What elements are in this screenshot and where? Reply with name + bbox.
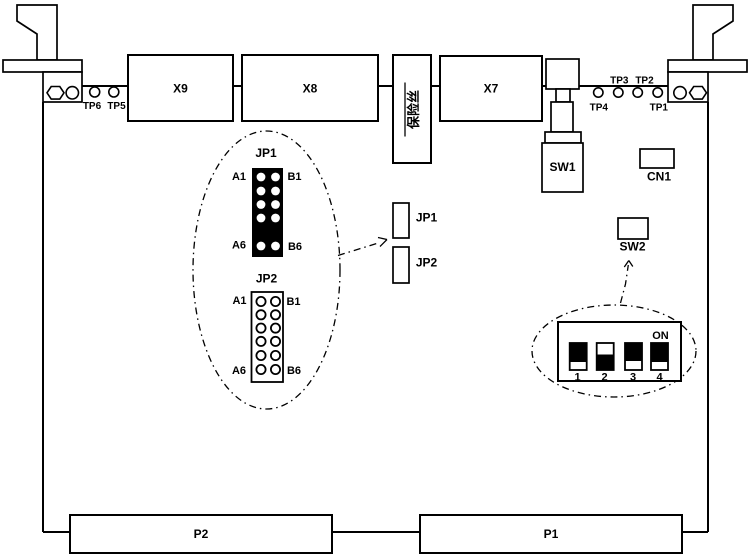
leader-arrow-jp <box>338 238 387 256</box>
left-ejector-handle <box>3 5 82 102</box>
pcb-layout-diagram: TP6 TP5 TP3 TP2 TP4 TP1 X9 X8 保险丝 X7 SW1 <box>0 0 755 560</box>
arrowhead-icon <box>378 238 387 247</box>
test-point-tp5 <box>109 87 119 97</box>
test-points-right: TP3 TP2 TP4 TP1 <box>590 76 669 114</box>
hex-screw-icon <box>690 87 707 100</box>
x8-label: X8 <box>303 82 318 96</box>
jp1-pin-b6: B6 <box>288 241 302 253</box>
cn1-connector: CN1 <box>640 149 674 184</box>
connector-x7: X7 <box>440 56 542 121</box>
jp1-box <box>393 203 409 238</box>
pin-hole <box>271 187 280 196</box>
sw1-shaft <box>551 102 573 132</box>
jp1-detail-title: JP1 <box>255 146 277 160</box>
tp3-label: TP3 <box>610 76 629 87</box>
pin-hole <box>257 214 266 223</box>
jp2-pin-a1: A1 <box>232 295 246 307</box>
hex-screw-icon <box>47 87 64 100</box>
jp1-pin-b1: B1 <box>287 171 301 183</box>
jp2-box <box>393 247 409 283</box>
dip-switch: ON 1 2 3 4 <box>558 322 681 384</box>
sw1-neck <box>556 89 570 102</box>
test-point-tp3 <box>614 88 623 97</box>
sw1-switch: SW1 <box>542 59 583 192</box>
cn1-box <box>640 149 674 168</box>
sw2-label: SW2 <box>619 240 645 254</box>
dip-switch-4-slider <box>651 343 668 362</box>
jumper-detail-balloon: JP1 A1 B1 A6 B6 JP2 <box>193 131 340 409</box>
left-handle-lever <box>17 5 57 60</box>
jp1-pin-a6: A6 <box>232 240 246 252</box>
jp2-pin-a6: A6 <box>232 365 246 377</box>
connector-p1: P1 <box>420 515 682 553</box>
pin-hole <box>271 365 280 374</box>
test-point-tp2 <box>633 88 642 97</box>
fuse-label: 保险丝 <box>406 90 421 130</box>
pin-hole <box>271 242 280 251</box>
leader-arrow-sw2 <box>621 261 633 304</box>
dip-pos-2-label: 2 <box>601 372 607 384</box>
sw2-box <box>618 218 648 239</box>
connector-x8: X8 <box>242 55 378 121</box>
pin-hole <box>271 297 280 306</box>
jp1-pin-a1: A1 <box>232 171 246 183</box>
right-handle-lever <box>693 5 733 60</box>
left-handle-plate <box>3 60 82 72</box>
pin-hole <box>271 214 280 223</box>
pin-hole <box>271 200 280 209</box>
pin-hole <box>256 324 265 333</box>
jp1-label: JP1 <box>416 211 438 225</box>
test-points-left: TP6 TP5 <box>83 87 126 112</box>
connector-p2: P2 <box>70 515 332 553</box>
sw1-label: SW1 <box>549 160 575 174</box>
jp1-jumper: JP1 <box>393 203 437 238</box>
connector-x9: X9 <box>128 55 233 121</box>
dip-on-label: ON <box>652 330 669 342</box>
test-point-tp6 <box>90 87 100 97</box>
pcb-diagram-canvas: TP6 TP5 TP3 TP2 TP4 TP1 X9 X8 保险丝 X7 SW1 <box>0 0 755 560</box>
tp6-label: TP6 <box>83 101 102 112</box>
board-outline <box>43 86 708 532</box>
leader-line <box>338 243 380 256</box>
jp2-pin-b1: B1 <box>286 296 300 308</box>
round-screw-icon <box>66 87 78 99</box>
sw1-collar <box>545 132 581 143</box>
tp4-label: TP4 <box>590 103 609 114</box>
test-point-tp4 <box>594 88 603 97</box>
dip-pos-3-label: 3 <box>630 372 636 384</box>
pin-hole <box>257 200 266 209</box>
p1-label: P1 <box>544 527 559 541</box>
right-handle-plate <box>668 60 747 72</box>
p2-label: P2 <box>194 527 209 541</box>
round-screw-icon <box>674 87 686 99</box>
sw1-top-block <box>546 59 579 89</box>
jp2-jumper: JP2 <box>393 247 437 283</box>
jp1-detail: JP1 A1 B1 A6 B6 <box>232 146 302 257</box>
pin-hole <box>256 351 265 360</box>
tp1-label: TP1 <box>650 103 669 114</box>
pin-hole <box>257 187 266 196</box>
jp2-label: JP2 <box>416 256 438 270</box>
leader-line <box>621 265 629 303</box>
right-ejector-handle <box>668 5 747 102</box>
test-point-tp1 <box>653 88 662 97</box>
pin-hole <box>256 337 265 346</box>
dip-pos-1-label: 1 <box>574 372 580 384</box>
pin-hole <box>271 310 280 319</box>
jp2-detail: JP2 A1 B1 A6 B6 <box>232 272 301 383</box>
dip-switch-1-slider <box>570 343 587 362</box>
pin-hole <box>271 337 280 346</box>
pin-hole <box>271 324 280 333</box>
pin-hole <box>256 310 265 319</box>
pin-hole <box>271 173 280 182</box>
tp5-label: TP5 <box>107 101 126 112</box>
dip-pos-4-label: 4 <box>656 372 663 384</box>
jp2-pin-b6: B6 <box>287 365 301 377</box>
jp2-detail-title: JP2 <box>256 272 278 286</box>
dip-switch-2-slider <box>597 355 614 371</box>
fuse: 保险丝 <box>393 55 431 163</box>
dip-switch-3-slider <box>625 343 642 361</box>
pin-hole <box>256 365 265 374</box>
x9-label: X9 <box>173 82 188 96</box>
dip-switch-detail-balloon: ON 1 2 3 4 <box>532 305 696 397</box>
pin-hole <box>271 351 280 360</box>
x7-label: X7 <box>484 82 499 96</box>
sw2-switch: SW2 <box>618 218 648 254</box>
pin-hole <box>257 173 266 182</box>
pin-hole <box>257 242 266 251</box>
tp2-label: TP2 <box>635 76 654 87</box>
cn1-label: CN1 <box>647 170 671 184</box>
pin-hole <box>256 297 265 306</box>
